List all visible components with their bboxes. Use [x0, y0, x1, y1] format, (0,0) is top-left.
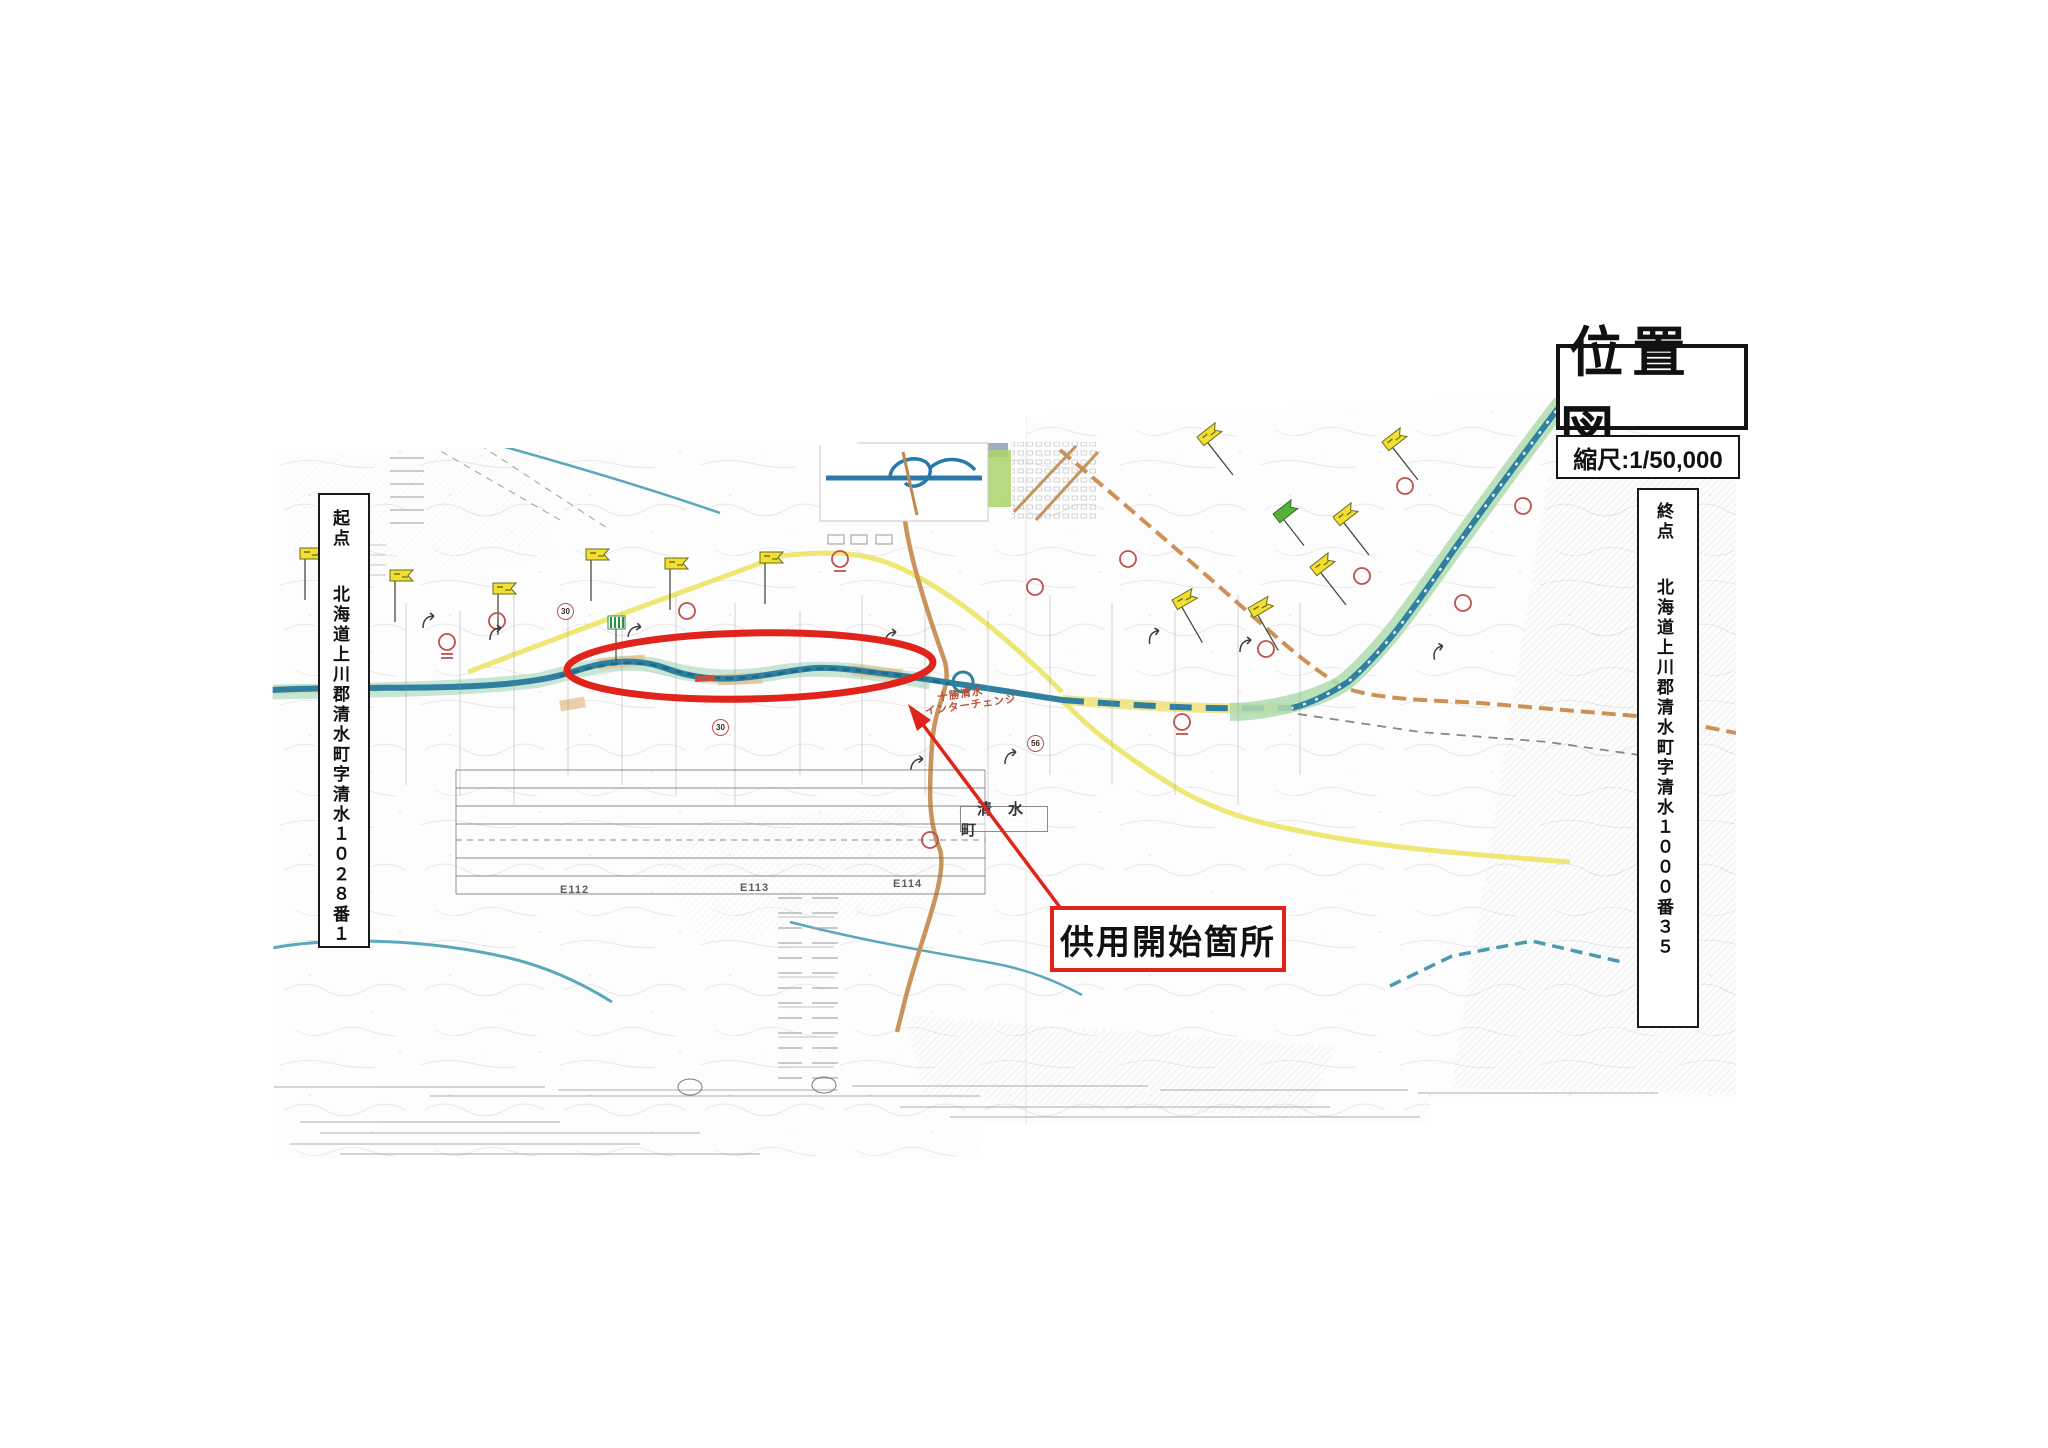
end-point-address: 北海道上川郡清水町字清水１０００番３５ [1651, 578, 1676, 958]
start-point-heading: 起点 [330, 509, 349, 549]
annotation-overlay [0, 0, 2048, 1448]
map-scale: 縮尺:1/50,000 [1556, 435, 1740, 479]
callout-arrow-line [921, 722, 1062, 910]
map-title: 位置図 [1556, 344, 1748, 430]
start-point-box: 起点北海道上川郡清水町字清水１０２８番１ [318, 493, 370, 948]
highlight-ellipse [566, 629, 933, 703]
end-point-box: 終点北海道上川郡清水町字清水１０００番３５ [1637, 488, 1699, 1028]
service-start-callout: 供用開始箇所 [1050, 906, 1286, 972]
start-point-address: 北海道上川郡清水町字清水１０２８番１ [327, 585, 352, 945]
callout-arrowhead-icon [908, 704, 931, 731]
location-map-page: 十勝清水 インターチェンジ 清水町 E112 E113 E114 30 30 5… [0, 0, 2048, 1448]
end-point-heading: 終点 [1654, 502, 1673, 542]
